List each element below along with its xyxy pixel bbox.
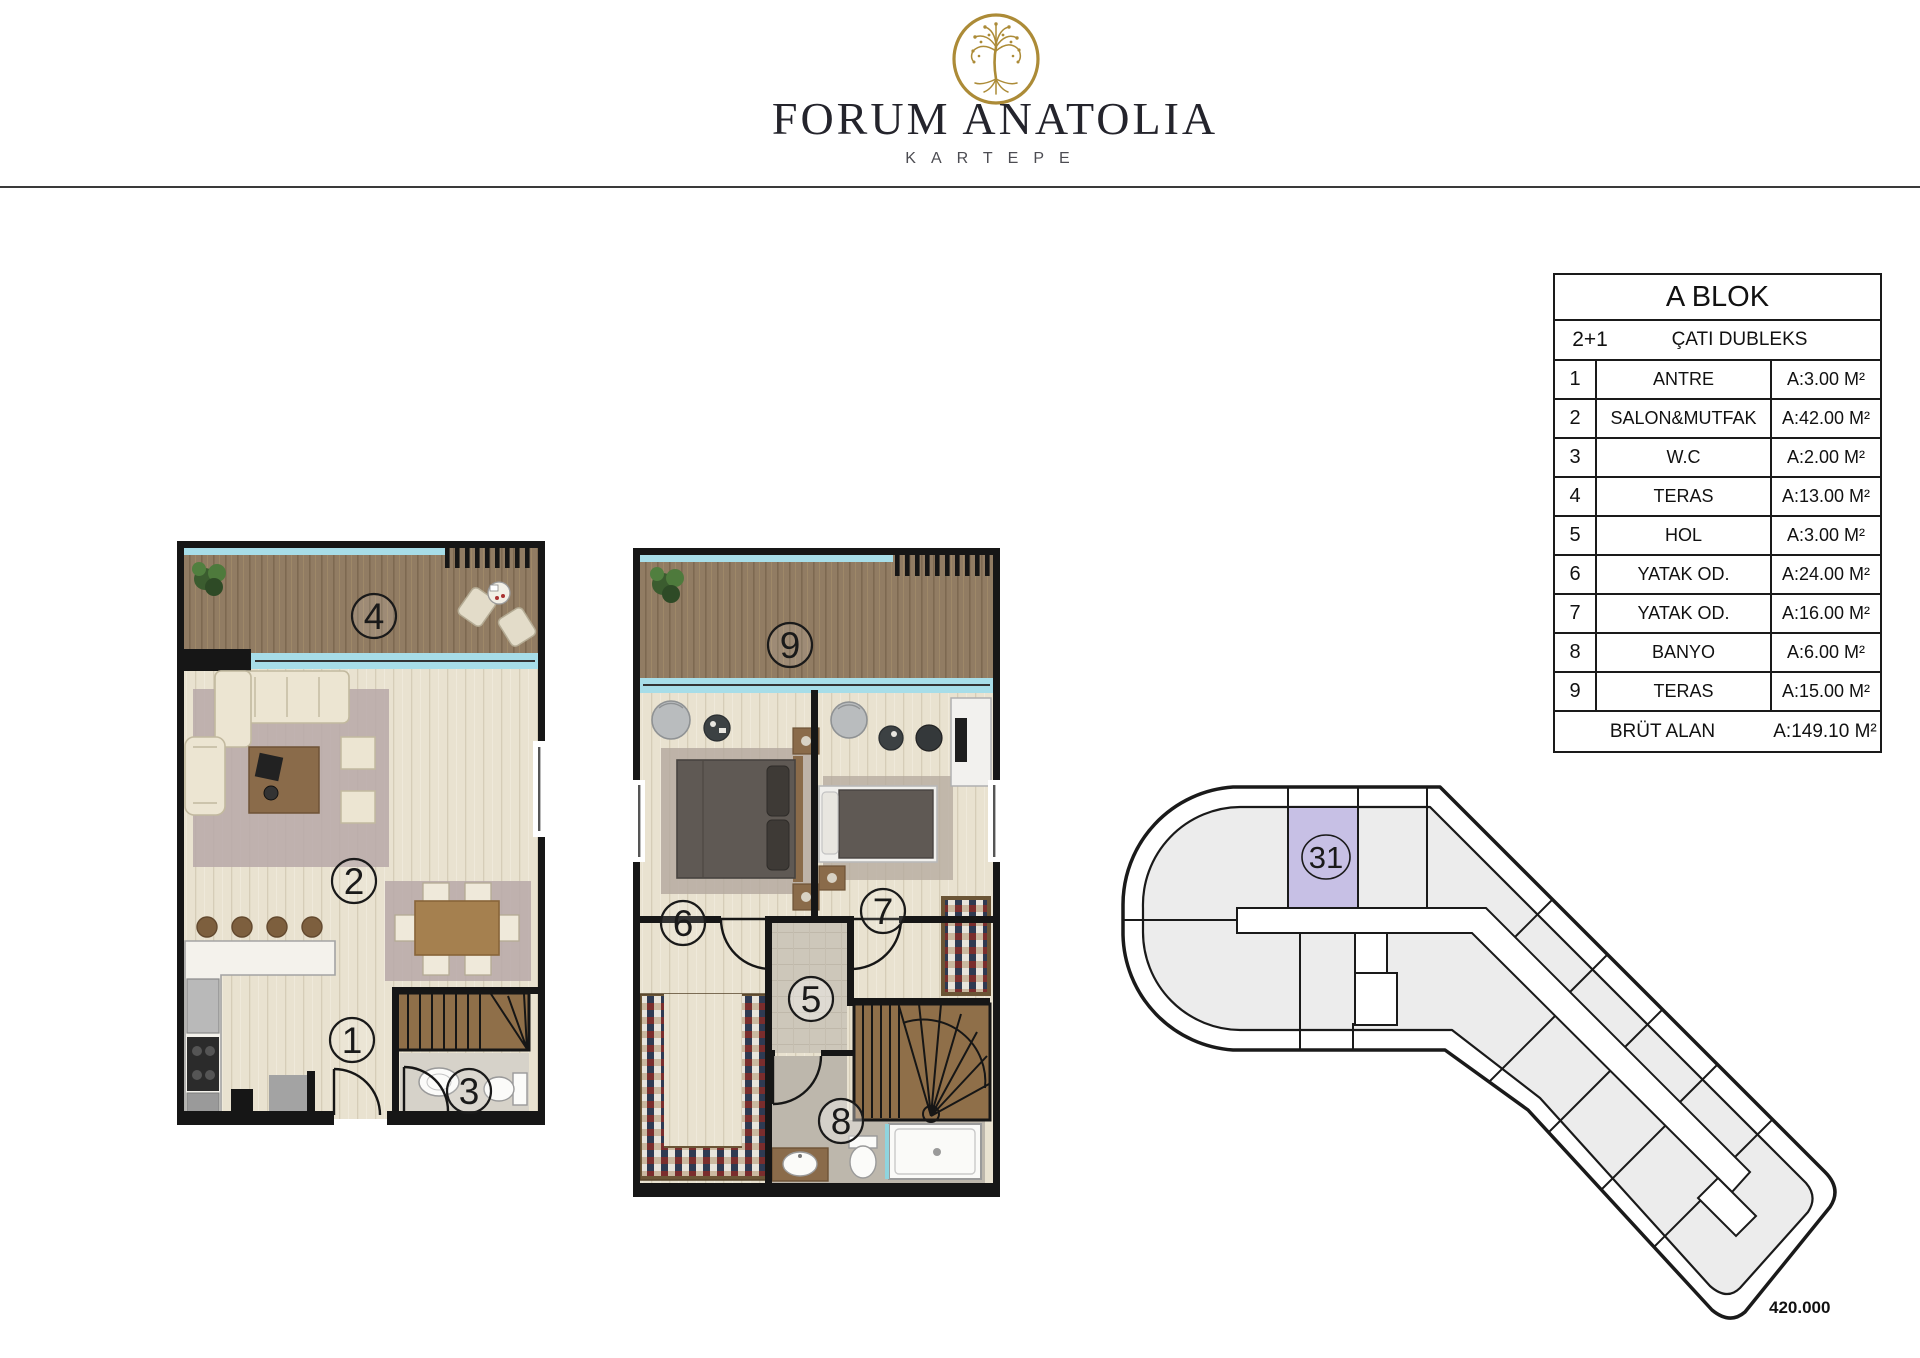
room-label-wc: 3 [447, 1069, 491, 1113]
unit-type-row: 2+1 ÇATI DUBLEKS [1555, 319, 1880, 359]
table-title: A BLOK [1555, 275, 1880, 319]
table-row: 6 YATAK OD. A:24.00 M² [1555, 554, 1880, 593]
room-name: W.C [1597, 439, 1772, 476]
room-label-hall: 5 [789, 977, 833, 1021]
room-no: 4 [1555, 478, 1597, 515]
svg-text:3: 3 [459, 1071, 480, 1112]
armchair [185, 737, 225, 815]
wall-segment [177, 649, 251, 671]
side-table [879, 726, 903, 750]
room-area: A:42.00 M² [1772, 400, 1880, 437]
unit-info-table: A BLOK 2+1 ÇATI DUBLEKS 1 ANTRE A:3.00 M… [1553, 273, 1882, 753]
room-name: TERAS [1597, 673, 1772, 710]
room-no: 2 [1555, 400, 1597, 437]
spiral-staircase [854, 1004, 990, 1122]
room-area: A:2.00 M² [1772, 439, 1880, 476]
ottoman [341, 791, 375, 823]
armchair [831, 702, 867, 738]
wall-segment [821, 1050, 854, 1056]
room-label-terrace: 4 [352, 594, 396, 638]
floor-plan-upper: 9 6 7 5 8 [633, 548, 1000, 1197]
table-row: 9 TERAS A:15.00 M² [1555, 671, 1880, 710]
table-row: 2 SALON&MUTFAK A:42.00 M² [1555, 398, 1880, 437]
room-no: 1 [1555, 361, 1597, 398]
header-divider [0, 186, 1920, 188]
total-area: A:149.10 M² [1770, 721, 1880, 743]
wall-segment [392, 987, 545, 994]
wall-segment [392, 987, 399, 1125]
svg-text:2: 2 [344, 861, 365, 902]
building-key-plan: 31 [1100, 780, 1860, 1325]
armchair [652, 701, 690, 739]
brand-title: FORUM ANATOLIA [0, 92, 1920, 145]
svg-text:8: 8 [831, 1101, 852, 1142]
room-no: 7 [1555, 595, 1597, 632]
unit-type: 2+1 [1555, 328, 1625, 352]
coffee-table [249, 747, 319, 813]
unit-31-highlight[interactable]: 31 [1288, 807, 1358, 908]
svg-text:9: 9 [780, 625, 801, 666]
room-area: A:16.00 M² [1772, 595, 1880, 632]
room-name: BANYO [1597, 634, 1772, 671]
room-label-bedroom-2: 7 [861, 889, 905, 933]
double-bed [677, 756, 803, 882]
desk-chair [916, 725, 942, 751]
shower [885, 1124, 981, 1179]
single-bed [819, 786, 937, 862]
ottoman [341, 737, 375, 769]
room-no: 9 [1555, 673, 1597, 710]
monitor-icon [955, 718, 967, 762]
room-area: A:24.00 M² [1772, 556, 1880, 593]
room-name: YATAK OD. [1597, 556, 1772, 593]
terrace-glass-rail [633, 555, 893, 562]
staircase [396, 993, 529, 1050]
svg-text:7: 7 [873, 891, 894, 932]
room-name: SALON&MUTFAK [1597, 400, 1772, 437]
walk-in-wardrobe [640, 994, 768, 1180]
elevator-core [1355, 973, 1397, 1025]
table-row: 1 ANTRE A:3.00 M² [1555, 359, 1880, 398]
wall-left [177, 541, 184, 1125]
wall-segment [765, 916, 772, 1056]
room-area: A:15.00 M² [1772, 673, 1880, 710]
room-label-terrace: 9 [768, 623, 812, 667]
wall-segment [765, 1050, 772, 1183]
table-row: 5 HOL A:3.00 M² [1555, 515, 1880, 554]
total-label: BRÜT ALAN [1555, 721, 1770, 743]
room-label-bathroom: 8 [819, 1099, 863, 1143]
svg-text:6: 6 [673, 903, 694, 944]
wall-segment [847, 916, 854, 1006]
toilet [849, 1136, 877, 1178]
room-no: 8 [1555, 634, 1597, 671]
wall-segment [899, 916, 1000, 923]
room-no: 3 [1555, 439, 1597, 476]
room-label-entry: 1 [330, 1018, 374, 1062]
unit-number: 31 [1309, 840, 1343, 875]
wall-segment [847, 998, 990, 1004]
table-total-row: BRÜT ALAN A:149.10 M² [1555, 710, 1880, 751]
wall-left [633, 548, 640, 1197]
room-area: A:13.00 M² [1772, 478, 1880, 515]
room-no: 6 [1555, 556, 1597, 593]
wall-segment [811, 690, 818, 918]
stair-core [1355, 933, 1387, 973]
table-row: 3 W.C A:2.00 M² [1555, 437, 1880, 476]
table-row: 4 TERAS A:13.00 M² [1555, 476, 1880, 515]
side-table [704, 715, 730, 741]
room-area: A:3.00 M² [1772, 517, 1880, 554]
window [988, 780, 1000, 862]
room-name: YATAK OD. [1597, 595, 1772, 632]
room-name: ANTRE [1597, 361, 1772, 398]
room-area: A:3.00 M² [1772, 361, 1880, 398]
floor-plan-lower: 4 2 1 3 [177, 541, 545, 1125]
svg-text:4: 4 [364, 596, 385, 637]
room-name: TERAS [1597, 478, 1772, 515]
unit-type-label: ÇATI DUBLEKS [1625, 329, 1880, 351]
brand-location: KARTEPE [0, 150, 1920, 168]
wall-bottom [177, 1111, 334, 1125]
sink [772, 1148, 828, 1181]
room-name: HOL [1597, 517, 1772, 554]
room-label-bedroom-1: 6 [661, 901, 705, 945]
window [533, 741, 545, 837]
room-label-salon: 2 [332, 859, 376, 903]
svg-text:5: 5 [801, 979, 822, 1020]
wall-bottom [633, 1183, 1000, 1197]
terrace-glass-rail [177, 548, 445, 555]
price-label: 420.000 [1769, 1298, 1830, 1318]
wall-right [993, 548, 1000, 1197]
svg-text:1: 1 [342, 1020, 363, 1061]
wall-segment [771, 916, 851, 923]
window [633, 780, 645, 862]
table-row: 7 YATAK OD. A:16.00 M² [1555, 593, 1880, 632]
terrace-floor [639, 554, 994, 678]
table-row: 8 BANYO A:6.00 M² [1555, 632, 1880, 671]
room-no: 5 [1555, 517, 1597, 554]
room-area: A:6.00 M² [1772, 634, 1880, 671]
nightstand [819, 866, 845, 890]
